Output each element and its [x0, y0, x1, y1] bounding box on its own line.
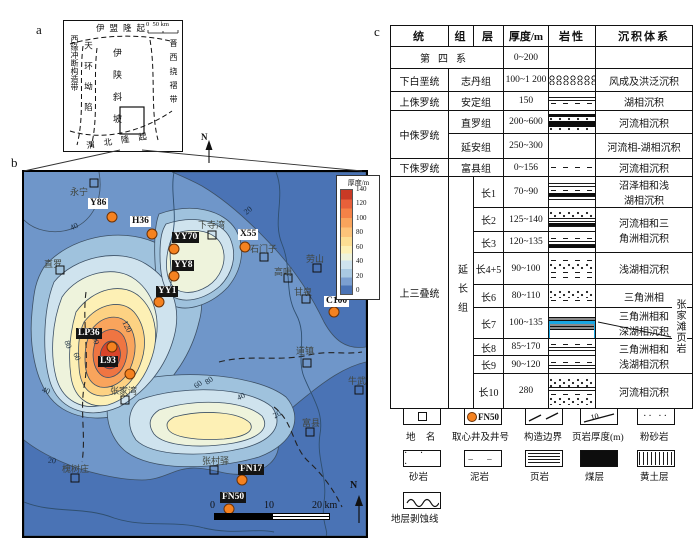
- scalebar-0: 0: [210, 500, 215, 511]
- well-label-LP36: LP36: [76, 328, 102, 339]
- well-marker-YY70: [169, 244, 180, 255]
- lith-sandstone: [549, 134, 596, 159]
- col-series: 统: [391, 26, 449, 47]
- well-label-YY1: YY1: [156, 286, 178, 297]
- quaternary-name: 第四系: [391, 47, 504, 69]
- well-dot-icon: [467, 412, 477, 422]
- legend-erosion-line-label: 地层剥蚀线: [391, 511, 439, 525]
- legend-loess-symbol: [637, 450, 675, 467]
- shale-highlight-box: [549, 321, 596, 339]
- well-marker-C100: [329, 307, 340, 318]
- place-xiasiwan: 下寺湾: [198, 218, 225, 231]
- well-label-Y86: Y86: [88, 198, 108, 209]
- legend-shale-thickness-symbol: 10: [580, 408, 618, 425]
- legend-place-label: 地 名: [406, 429, 439, 443]
- colorbar-ticks: 140120 10080 6040 200: [356, 186, 367, 294]
- thickness-colorbar: 厚度/m 140120 10080 6040 200: [336, 175, 380, 300]
- lith-zhangjiatan-shale: [549, 308, 596, 339]
- col-formation: 组: [449, 26, 474, 47]
- panel-b-thickness-map: 40 20 120 100 80 60 40 20 60 80 40 20 Y8…: [22, 170, 368, 538]
- formation-yanchang: 延长组: [449, 177, 474, 409]
- lith-sandstone-erosion: [549, 69, 596, 92]
- legend-cored-well-symbol: FN50: [464, 408, 502, 425]
- legend-shale-label: 页岩: [530, 469, 549, 483]
- place-huaishuzhuang: 槐树庄: [62, 462, 89, 475]
- lith-sand-mud: [549, 159, 596, 177]
- lith-sand-coal: [549, 111, 596, 134]
- place-fuxian: 富县: [302, 416, 320, 429]
- unit-jinxi-flexure-belt: 晋西挠褶带: [169, 39, 177, 131]
- legend-structural-boundary-symbol: [525, 408, 563, 425]
- legend-mudstone-label: 泥岩: [470, 469, 489, 483]
- row-chang1: 上三叠统 延长组 长1 70~90 沼泽相和浅 湖相沉积: [391, 177, 693, 208]
- well-label-YY70: YY70: [172, 232, 199, 243]
- row-fuxian: 下侏罗统 富县组 0~156 河流相沉积: [391, 159, 693, 177]
- dashed-line-icon: [527, 410, 561, 424]
- legend-sandstone-symbol: · · ·: [403, 450, 441, 467]
- contour-label: 20: [48, 456, 57, 466]
- place-square-icon: [418, 412, 427, 421]
- legend-erosion-line-symbol: [403, 492, 441, 509]
- well-label-L93: L93: [98, 356, 118, 367]
- panel-a-north-arrow: [206, 140, 213, 163]
- row-quaternary: 第四系 0~200: [391, 47, 693, 69]
- zhangjiatan-shale-annotation: 张家滩页岩: [672, 299, 687, 354]
- legend-sandstone-label: 砂岩: [409, 469, 428, 483]
- legend-coal-label: 煤层: [585, 469, 604, 483]
- well-label-FN17: FN17: [238, 464, 264, 475]
- shale-lines-icon: [528, 453, 560, 464]
- place-shimenzi: 石门子: [250, 242, 277, 255]
- legend-place-symbol: [403, 408, 441, 425]
- sandstone-dots-icon: · · ·: [404, 448, 440, 470]
- scalebar-10: 10: [264, 500, 274, 511]
- col-deposystem: 沉积体系: [596, 26, 693, 47]
- place-gaoshao: 高哨: [274, 265, 292, 278]
- row-zhiluo: 中侏罗统 直罗组 200~600 河流相沉积: [391, 111, 693, 134]
- col-thickness: 厚度/m: [504, 26, 549, 47]
- scalebar-open-segment: [272, 513, 330, 520]
- lith-loess: [549, 47, 596, 69]
- place-laoshan: 劳山: [306, 252, 324, 265]
- panel-a-label: a: [36, 22, 42, 38]
- place-marker-daozhen: [303, 359, 312, 368]
- wavy-line-icon: [405, 494, 439, 508]
- place-marker-yongning: [90, 179, 99, 188]
- col-member: 层: [474, 26, 504, 47]
- place-niuwu: 牛武: [348, 374, 366, 387]
- study-area-box: [120, 107, 144, 134]
- stratigraphic-column-table: 统 组 层 厚度/m 岩性 沉积体系 第四系 0~200 下白垩统 志丹组 10…: [390, 25, 693, 409]
- lith-sand-mud: [549, 92, 596, 111]
- col-lithology: 岩性: [549, 26, 596, 47]
- place-ganquan: 甘泉: [294, 285, 312, 298]
- legend-shale-thickness-label: 页岩厚度(m): [572, 429, 624, 443]
- well-label-H36: H36: [130, 216, 151, 227]
- legend-loess-label: 黄土层: [640, 469, 669, 483]
- svg-text:10: 10: [590, 411, 600, 422]
- well-marker-YY8: [169, 271, 180, 282]
- row-zhidan: 下白垩统 志丹组 100~1 200 风成及洪泛沉积: [391, 69, 693, 92]
- series-upper-triassic: 上三叠统: [391, 177, 449, 409]
- siltstone-dots-icon: ·· ··: [643, 411, 669, 422]
- well-marker-L93: [125, 369, 136, 380]
- table-header-row: 统 组 层 厚度/m 岩性 沉积体系: [391, 26, 693, 47]
- well-marker-X55: [240, 242, 251, 253]
- place-yongning: 永宁: [70, 185, 88, 198]
- figure: a 伊盟隆起 0 50 km 西缘冲断构造带 天环坳陷 伊陕斜坡 晋西挠褶带 渭…: [0, 0, 700, 547]
- well-marker-Y86: [107, 212, 118, 223]
- place-marker-xiasiwan: [208, 231, 217, 240]
- legend-siltstone-label: 粉砂岩: [640, 429, 669, 443]
- well-marker-YY1: [154, 297, 165, 308]
- unit-yishan-slope: 伊陕斜坡: [112, 48, 121, 140]
- legend-structural-boundary-label: 构造边界: [524, 429, 562, 443]
- colorbar-gradient: [340, 189, 353, 295]
- well-label-X55: X55: [238, 229, 258, 240]
- panel-a-north-label: N: [201, 132, 208, 142]
- unit-west-thrust-belt: 西缘冲断构造带: [70, 35, 78, 147]
- unit-tianhuan-depression: 天环坳陷: [84, 41, 93, 141]
- legend-coal-symbol: [580, 450, 618, 467]
- place-zhiluo: 直罗: [44, 257, 62, 270]
- well-marker-H36: [147, 229, 158, 240]
- scalebar-20km: 20 km: [312, 500, 337, 511]
- unit-yimeng-uplift: 伊盟隆起: [96, 24, 150, 33]
- well-label-YY8: YY8: [172, 260, 194, 271]
- place-daozhen: 道镇: [296, 344, 314, 357]
- loess-lines-icon: [639, 452, 673, 465]
- well-marker-FN17: [237, 475, 248, 486]
- panel-b-label: b: [11, 155, 18, 171]
- panel-b-north-label: N: [350, 480, 357, 491]
- well-marker-LP36: [107, 342, 118, 353]
- legend-shale-symbol: [525, 450, 563, 467]
- place-zhangjiawan: 张家湾: [110, 384, 137, 397]
- place-zhangcunyi: 张村驿: [202, 454, 229, 467]
- panel-a-tectonic-map: 伊盟隆起 0 50 km 西缘冲断构造带 天环坳陷 伊陕斜坡 晋西挠褶带 渭北隆…: [63, 20, 183, 152]
- well-label-FN50: FN50: [220, 492, 246, 503]
- legend-cored-well-label: 取心井及井号: [452, 429, 509, 443]
- scalebar-filled-segment: [214, 513, 272, 520]
- mudstone-dashes-icon: – –: [468, 454, 497, 464]
- legend-siltstone-symbol: ·· ··: [637, 408, 675, 425]
- row-anding: 上侏罗统 安定组 150 湖相沉积: [391, 92, 693, 111]
- contour-line-icon: 10: [582, 410, 616, 424]
- panel-c-label: c: [374, 24, 380, 40]
- panel-a-scale: 0 50 km: [146, 22, 169, 29]
- tectonic-map-lines: [64, 21, 181, 150]
- legend-mudstone-symbol: – –: [464, 450, 502, 467]
